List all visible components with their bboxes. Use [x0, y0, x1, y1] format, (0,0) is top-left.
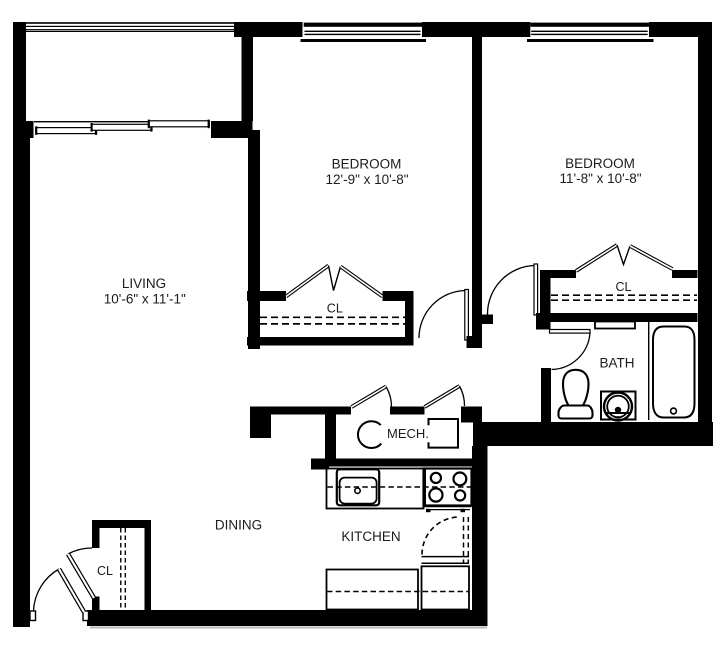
- svg-text:BEDROOM: BEDROOM: [565, 156, 635, 171]
- svg-text:10'-6" x 11'-1": 10'-6" x 11'-1": [104, 292, 186, 307]
- svg-text:KITCHEN: KITCHEN: [341, 529, 400, 544]
- svg-text:CL: CL: [616, 280, 632, 294]
- svg-text:BATH: BATH: [599, 356, 634, 371]
- svg-text:CL: CL: [97, 564, 113, 578]
- svg-text:DINING: DINING: [215, 518, 262, 533]
- svg-text:CL: CL: [327, 302, 343, 316]
- svg-text:BEDROOM: BEDROOM: [332, 157, 402, 172]
- svg-text:LIVING: LIVING: [122, 276, 166, 291]
- svg-text:12'-9" x 10'-8": 12'-9" x 10'-8": [325, 172, 408, 187]
- svg-text:11'-8" x 10'-8": 11'-8" x 10'-8": [559, 171, 641, 186]
- svg-text:MECH.: MECH.: [387, 426, 429, 441]
